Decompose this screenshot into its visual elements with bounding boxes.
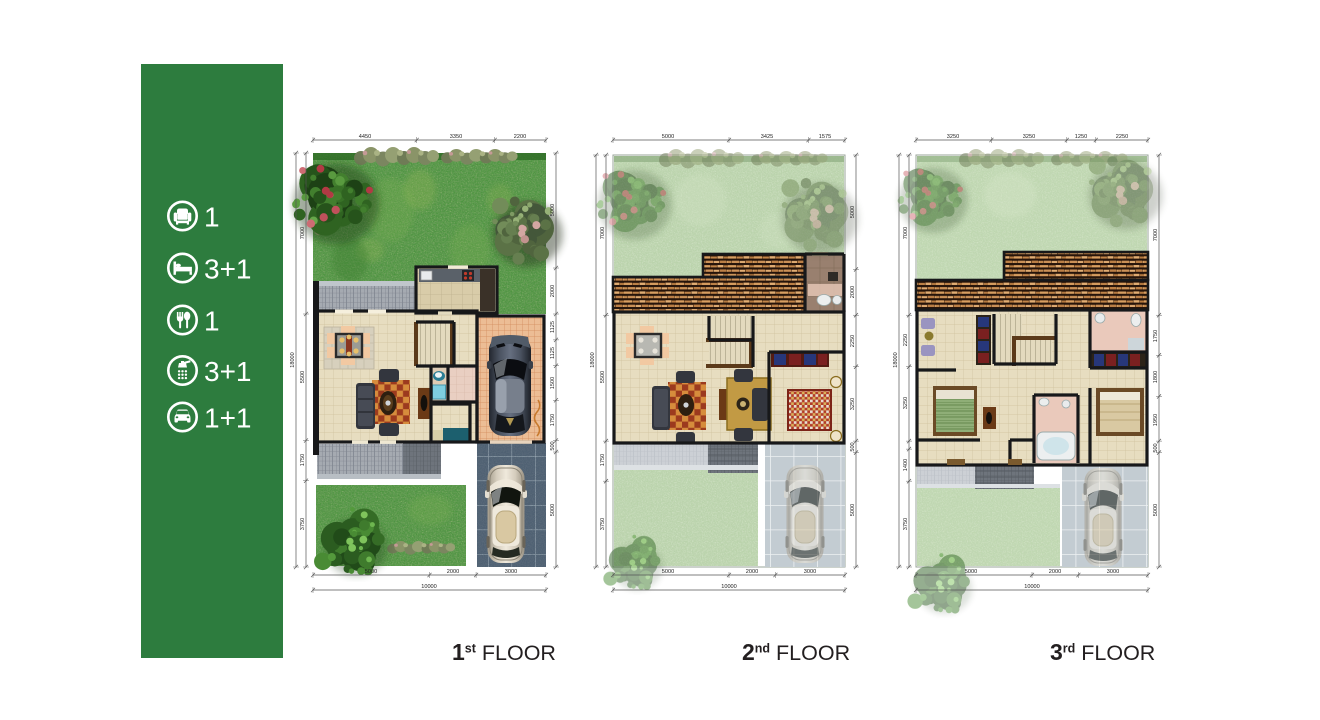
svg-text:7000: 7000 [1153, 229, 1159, 241]
svg-text:1750: 1750 [600, 454, 606, 466]
svg-text:5000: 5000 [550, 204, 556, 216]
svg-text:3350: 3350 [450, 134, 462, 140]
svg-text:5000: 5000 [850, 206, 856, 218]
svg-text:18000: 18000 [590, 352, 596, 368]
svg-text:3250: 3250 [903, 397, 909, 409]
svg-text:18000: 18000 [290, 352, 296, 368]
svg-text:1: 1 [204, 202, 220, 233]
svg-text:3750: 3750 [903, 518, 909, 530]
svg-text:5000: 5000 [1153, 504, 1159, 516]
svg-text:2200: 2200 [514, 134, 526, 140]
svg-text:1575: 1575 [819, 134, 831, 140]
svg-text:2000: 2000 [850, 286, 856, 298]
svg-text:2000: 2000 [1049, 569, 1061, 575]
svg-text:4450: 4450 [359, 134, 371, 140]
svg-text:10000: 10000 [421, 584, 437, 590]
svg-text:3250: 3250 [850, 398, 856, 410]
svg-text:3425: 3425 [761, 134, 773, 140]
svg-text:3750: 3750 [300, 518, 306, 530]
svg-text:2250: 2250 [1116, 134, 1128, 140]
svg-text:3000: 3000 [505, 569, 517, 575]
svg-text:1950: 1950 [1153, 414, 1159, 426]
svg-text:18000: 18000 [893, 352, 899, 368]
svg-text:1750: 1750 [1153, 330, 1159, 342]
svg-text:3750: 3750 [600, 518, 606, 530]
svg-text:3250: 3250 [947, 134, 959, 140]
svg-text:2000: 2000 [550, 285, 556, 297]
svg-text:5500: 5500 [600, 371, 606, 383]
svg-text:10000: 10000 [721, 584, 737, 590]
svg-text:5500: 5500 [300, 371, 306, 383]
svg-text:2000: 2000 [746, 569, 758, 575]
svg-text:1500: 1500 [550, 377, 556, 389]
svg-text:7000: 7000 [300, 227, 306, 239]
svg-text:7000: 7000 [903, 227, 909, 239]
svg-text:2000: 2000 [447, 569, 459, 575]
svg-text:5000: 5000 [550, 504, 556, 516]
svg-text:2nd FLOOR: 2nd FLOOR [742, 639, 850, 665]
svg-text:1: 1 [204, 306, 220, 337]
svg-text:1800: 1800 [1153, 371, 1159, 383]
svg-text:3+1: 3+1 [204, 254, 252, 285]
svg-text:1250: 1250 [1075, 134, 1087, 140]
svg-text:500: 500 [550, 441, 556, 450]
svg-text:3250: 3250 [1023, 134, 1035, 140]
svg-text:10000: 10000 [1024, 584, 1040, 590]
svg-text:1125: 1125 [550, 321, 556, 333]
svg-text:3000: 3000 [1107, 569, 1119, 575]
svg-text:3rd FLOOR: 3rd FLOOR [1050, 639, 1155, 665]
svg-text:2250: 2250 [903, 334, 909, 346]
svg-text:1125: 1125 [550, 347, 556, 359]
svg-text:500: 500 [1153, 443, 1159, 452]
svg-text:5000: 5000 [965, 569, 977, 575]
svg-text:1750: 1750 [550, 414, 556, 426]
svg-text:5000: 5000 [365, 569, 377, 575]
svg-text:7000: 7000 [600, 227, 606, 239]
svg-text:3+1: 3+1 [204, 356, 252, 387]
svg-text:1750: 1750 [300, 454, 306, 466]
svg-text:1+1: 1+1 [204, 403, 252, 434]
svg-text:1st FLOOR: 1st FLOOR [452, 639, 556, 665]
svg-text:2250: 2250 [850, 335, 856, 347]
svg-text:3000: 3000 [804, 569, 816, 575]
svg-text:5000: 5000 [662, 134, 674, 140]
svg-text:1400: 1400 [903, 459, 909, 471]
svg-text:5000: 5000 [662, 569, 674, 575]
svg-text:5000: 5000 [850, 504, 856, 516]
svg-text:500: 500 [850, 442, 856, 451]
